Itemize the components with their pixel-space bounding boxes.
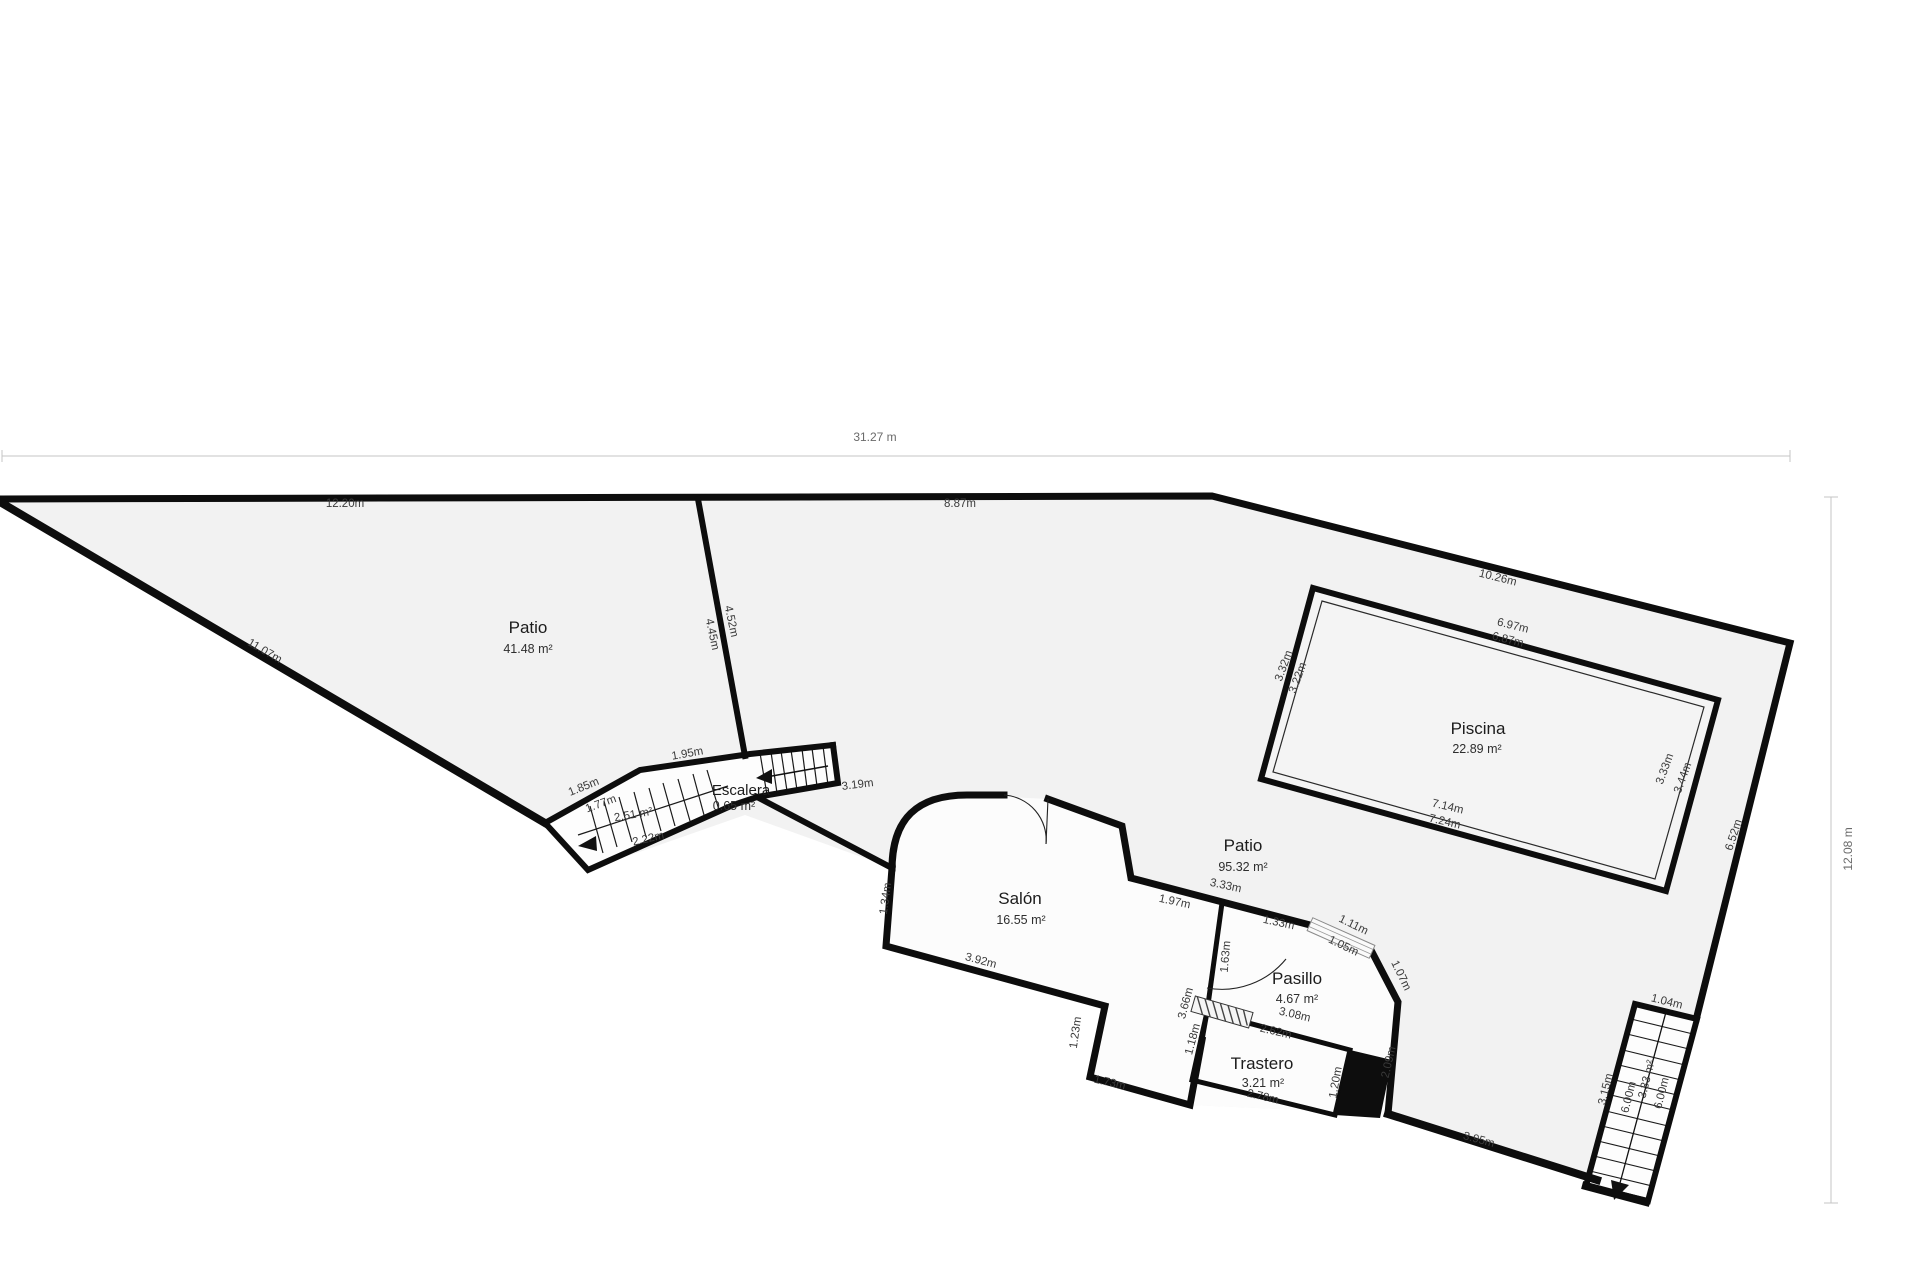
room-label: Trastero [1231,1054,1294,1073]
floor-plan-canvas: 31.27 m 12.08 m Patio 41.48 m² Piscina 2… [0,0,1920,1280]
overall-width-label: 31.27 m [853,430,896,444]
floor-plan-page: 31.27 m 12.08 m Patio 41.48 m² Piscina 2… [0,0,1920,1280]
svg-text:8.87m: 8.87m [944,498,976,510]
room-area: 4.67 m² [1276,992,1318,1006]
room-label: Piscina [1451,719,1506,738]
room-label: Patio [1224,836,1263,855]
room-label: Pasillo [1272,969,1322,988]
room-area: 16.55 m² [996,913,1045,927]
room-area: 22.89 m² [1452,742,1501,756]
room-label: Salón [998,889,1041,908]
room-label: Escalera [712,782,771,799]
room-area: 41.48 m² [503,642,552,656]
svg-text:1.23m: 1.23m [1068,1016,1084,1049]
overall-height-label: 12.08 m [1841,827,1855,870]
svg-text:12.20m: 12.20m [326,498,364,510]
room-area: 95.32 m² [1218,860,1267,874]
room-label: Patio [509,618,548,637]
room-area: 0.65 m² [713,799,755,813]
